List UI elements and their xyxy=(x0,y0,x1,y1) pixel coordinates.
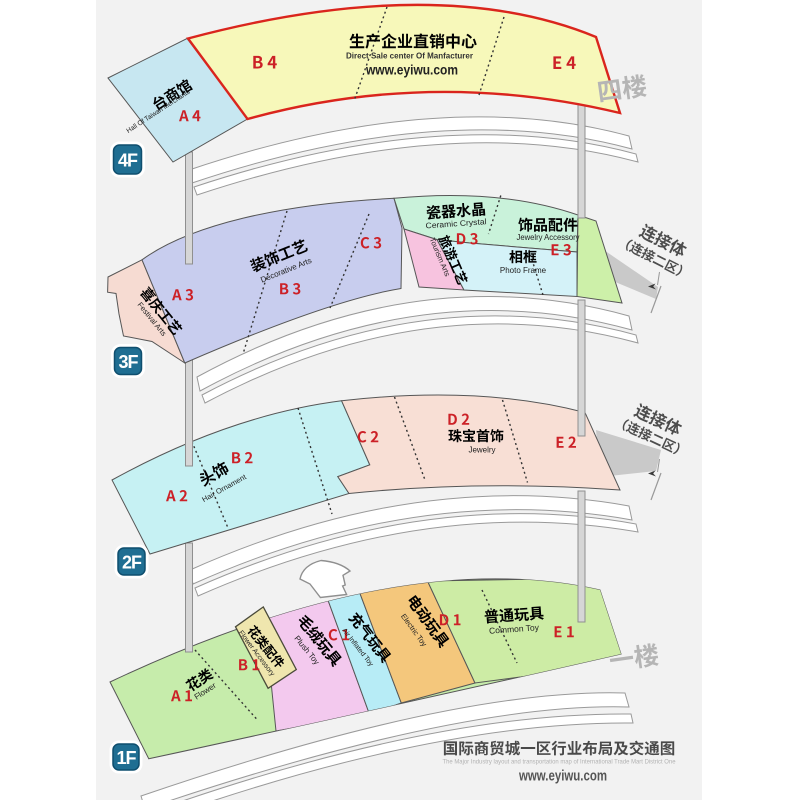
svg-text:1F: 1F xyxy=(116,748,136,768)
svg-text:Jewelry: Jewelry xyxy=(468,445,495,454)
svg-text:Direct Sale center Of Manfactu: Direct Sale center Of Manfacturer xyxy=(346,50,474,60)
svg-text:3F: 3F xyxy=(118,352,138,372)
svg-text:4F: 4F xyxy=(118,150,138,170)
svg-text:www.eyiwu.com: www.eyiwu.com xyxy=(365,63,458,78)
svg-text:Jewelry Accessory: Jewelry Accessory xyxy=(517,233,580,242)
svg-text:Photo Frame: Photo Frame xyxy=(500,266,547,275)
svg-text:www.eyiwu.com: www.eyiwu.com xyxy=(518,769,607,785)
svg-text:2F: 2F xyxy=(122,552,142,572)
svg-text:The Major Industry layout and: The Major Industry layout and transporta… xyxy=(443,758,676,765)
